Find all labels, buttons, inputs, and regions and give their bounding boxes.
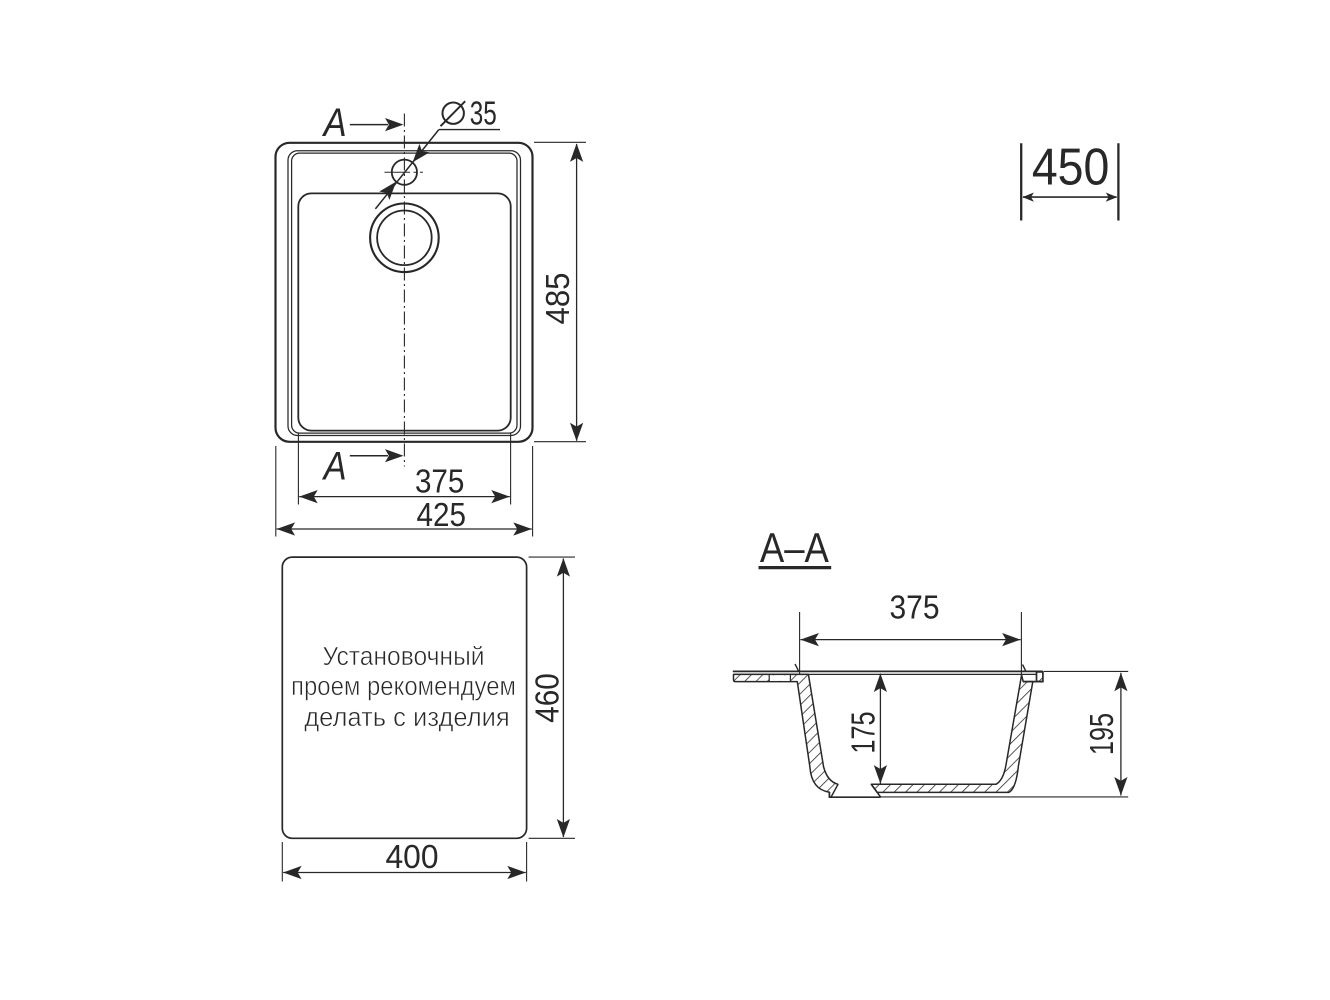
svg-text:450: 450 [1032, 138, 1110, 196]
svg-text:A: A [322, 101, 347, 145]
svg-text:400: 400 [386, 839, 439, 876]
svg-text:460: 460 [529, 673, 566, 723]
svg-text:A: A [322, 444, 347, 488]
svg-text:375: 375 [415, 464, 465, 501]
svg-text:делать с изделия: делать с изделия [304, 704, 510, 732]
svg-text:A–A: A–A [760, 524, 829, 571]
svg-text:35: 35 [470, 95, 497, 132]
svg-text:195: 195 [1084, 713, 1121, 755]
svg-text:Установочный: Установочный [323, 643, 485, 671]
svg-text:425: 425 [417, 497, 467, 534]
svg-text:175: 175 [846, 712, 883, 754]
svg-text:485: 485 [540, 273, 577, 325]
svg-text:проем рекомендуем: проем рекомендуем [291, 673, 516, 701]
svg-text:375: 375 [890, 590, 940, 627]
